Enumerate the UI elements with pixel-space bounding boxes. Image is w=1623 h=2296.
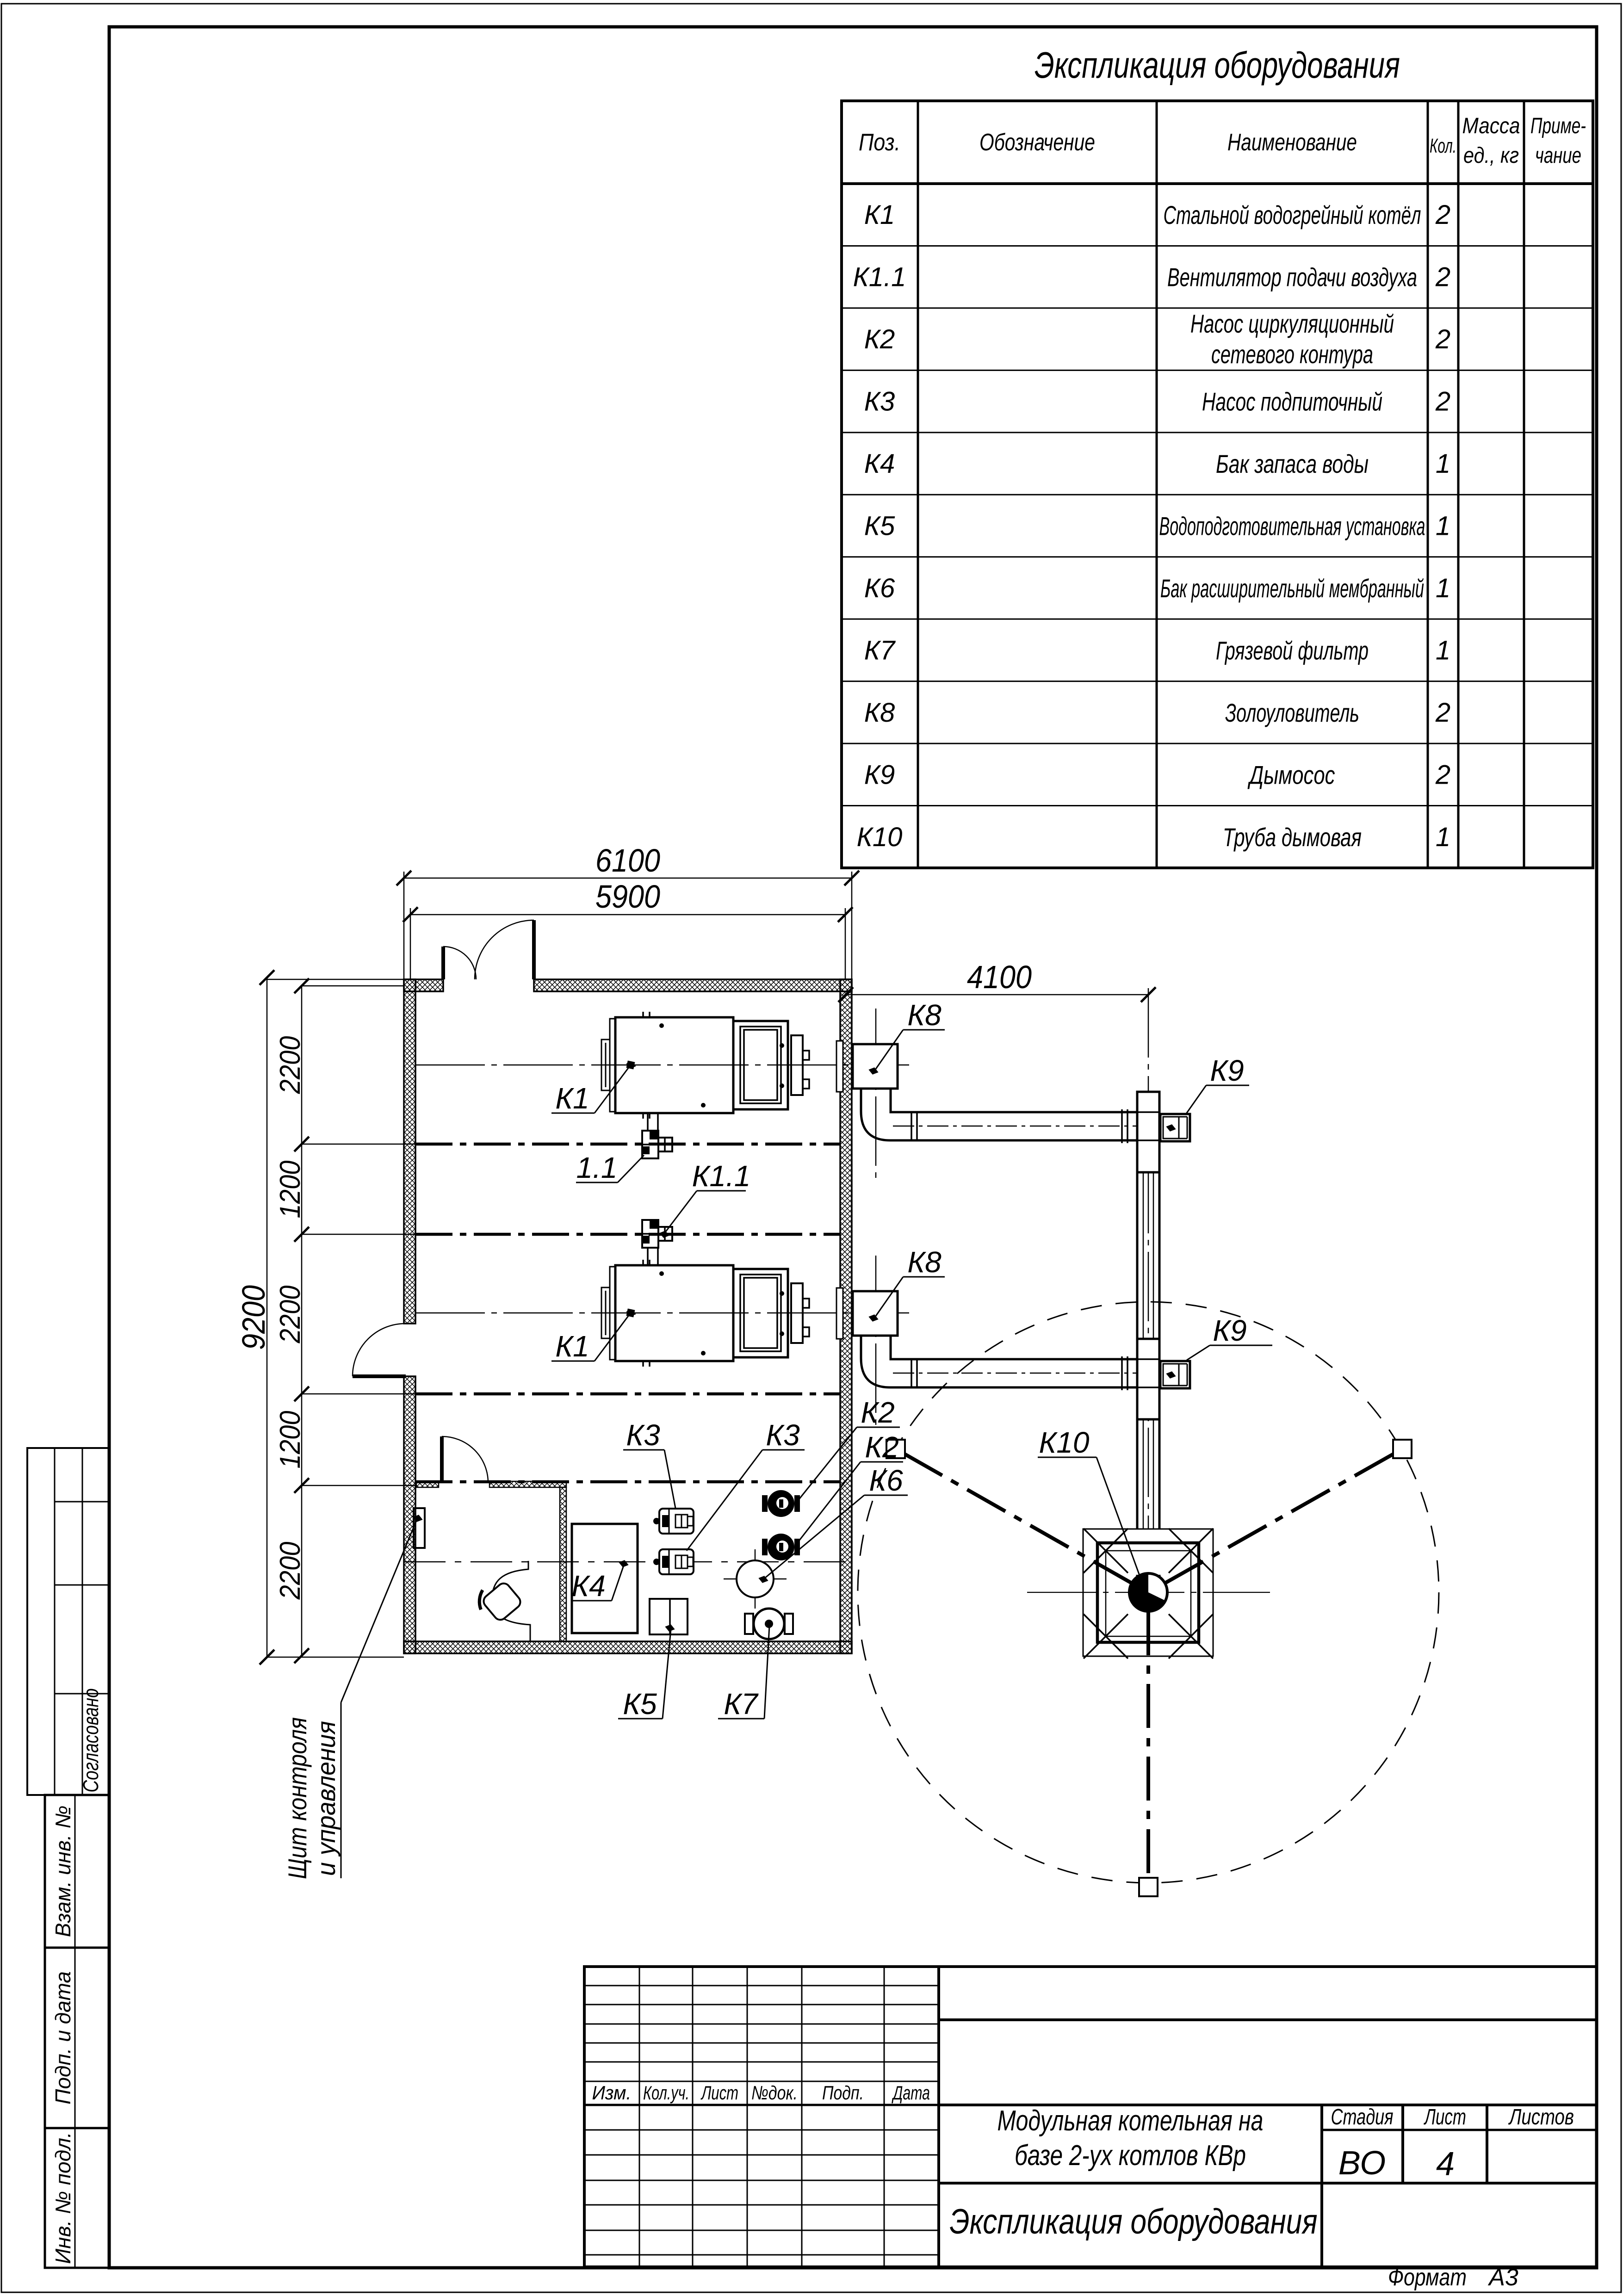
- svg-text:А3: А3: [1487, 2264, 1518, 2291]
- svg-text:Стадия: Стадия: [1331, 2105, 1394, 2129]
- svg-text:Подп. и дата: Подп. и дата: [51, 1971, 75, 2104]
- svg-text:Бак запаса воды: Бак запаса воды: [1216, 449, 1369, 478]
- svg-text:4: 4: [1436, 2146, 1455, 2183]
- svg-text:2: 2: [1435, 262, 1450, 292]
- svg-text:К5: К5: [864, 511, 895, 541]
- svg-text:2: 2: [1435, 760, 1450, 790]
- svg-text:Поз.: Поз.: [859, 129, 900, 156]
- svg-text:Водоподготовительная установка: Водоподготовительная установка: [1159, 512, 1425, 541]
- svg-text:Подп.: Подп.: [822, 2082, 864, 2104]
- svg-text:1: 1: [1436, 449, 1450, 479]
- svg-text:К9: К9: [1210, 1054, 1244, 1087]
- svg-text:1.1: 1.1: [576, 1151, 618, 1184]
- svg-text:К5: К5: [623, 1687, 657, 1720]
- svg-text:Труба дымовая: Труба дымовая: [1223, 823, 1362, 852]
- svg-text:К3: К3: [766, 1418, 800, 1452]
- svg-text:Кол.: Кол.: [1430, 135, 1456, 157]
- svg-text:ед., кг: ед., кг: [1463, 143, 1519, 168]
- svg-text:Приме-: Приме-: [1530, 114, 1586, 138]
- svg-text:4100: 4100: [967, 959, 1032, 995]
- svg-text:К4: К4: [571, 1569, 605, 1603]
- svg-text:К8: К8: [907, 998, 942, 1032]
- svg-text:Экспликация оборудования: Экспликация оборудования: [950, 2202, 1318, 2241]
- svg-text:Масса: Масса: [1462, 114, 1520, 138]
- svg-text:К3: К3: [626, 1418, 660, 1452]
- svg-text:К4: К4: [864, 449, 895, 479]
- svg-text:Золоуловитель: Золоуловитель: [1225, 698, 1359, 727]
- svg-text:сетевого контура: сетевого контура: [1211, 340, 1373, 369]
- svg-text:К1: К1: [555, 1330, 589, 1363]
- svg-text:К10: К10: [857, 822, 903, 852]
- svg-text:К1: К1: [555, 1082, 589, 1115]
- svg-text:К3: К3: [864, 387, 895, 417]
- svg-text:1200: 1200: [274, 1411, 306, 1469]
- svg-text:Формат: Формат: [1388, 2264, 1467, 2291]
- svg-text:2200: 2200: [274, 1286, 306, 1344]
- svg-text:2: 2: [1435, 387, 1450, 417]
- svg-text:№док.: №док.: [751, 2082, 798, 2104]
- svg-text:Экспликация оборудования: Экспликация оборудования: [1035, 44, 1400, 86]
- svg-text:К8: К8: [907, 1245, 942, 1279]
- svg-text:Вентилятор подачи воздуха: Вентилятор подачи воздуха: [1167, 263, 1417, 292]
- svg-text:К8: К8: [864, 698, 895, 728]
- svg-text:9200: 9200: [235, 1285, 272, 1350]
- svg-text:К2: К2: [861, 1396, 894, 1429]
- svg-text:К7: К7: [864, 635, 896, 665]
- svg-text:1: 1: [1436, 635, 1450, 665]
- svg-text:Взам. инв. №: Взам. инв. №: [51, 1806, 75, 1937]
- svg-text:и управления: и управления: [311, 1721, 341, 1876]
- svg-text:Лист: Лист: [1424, 2105, 1466, 2129]
- svg-text:Наименование: Наименование: [1227, 129, 1357, 156]
- svg-text:Модульная котельная на: Модульная котельная на: [997, 2105, 1264, 2137]
- svg-text:К9: К9: [864, 760, 895, 790]
- svg-text:Насос подпиточный: Насос подпиточный: [1202, 387, 1382, 416]
- svg-text:1200: 1200: [274, 1161, 306, 1219]
- svg-text:К1.1: К1.1: [853, 262, 906, 292]
- svg-text:К9: К9: [1213, 1314, 1246, 1347]
- svg-text:Дата: Дата: [892, 2082, 930, 2104]
- svg-text:К7: К7: [724, 1687, 759, 1720]
- svg-text:Изм.: Изм.: [592, 2082, 632, 2104]
- svg-text:К6: К6: [869, 1464, 903, 1497]
- svg-text:Грязевой фильтр: Грязевой фильтр: [1216, 636, 1369, 665]
- svg-text:1: 1: [1436, 822, 1450, 852]
- svg-text:2200: 2200: [274, 1542, 306, 1600]
- svg-text:2: 2: [1435, 324, 1450, 354]
- svg-text:чание: чание: [1535, 143, 1581, 168]
- svg-text:Щит контроля: Щит контроля: [283, 1717, 312, 1879]
- svg-text:К1.1: К1.1: [692, 1159, 751, 1193]
- svg-text:2: 2: [1435, 698, 1450, 728]
- svg-text:1: 1: [1436, 573, 1450, 603]
- svg-text:Листов: Листов: [1508, 2105, 1574, 2129]
- svg-text:Инв. № подл.: Инв. № подл.: [51, 2132, 75, 2264]
- svg-text:Насос циркуляционный: Насос циркуляционный: [1190, 309, 1394, 338]
- svg-text:ВО: ВО: [1338, 2145, 1386, 2182]
- svg-text:Дымосос: Дымосос: [1247, 760, 1335, 789]
- svg-text:К2: К2: [865, 1430, 898, 1464]
- svg-text:Кол.уч.: Кол.уч.: [643, 2082, 689, 2104]
- svg-text:5900: 5900: [595, 879, 660, 915]
- svg-text:2: 2: [1435, 200, 1450, 230]
- svg-text:К2: К2: [864, 324, 895, 354]
- svg-text:К1: К1: [864, 200, 895, 230]
- svg-text:базе 2-ух котлов КВр: базе 2-ух котлов КВр: [1015, 2140, 1246, 2172]
- svg-text:Бак расширительный мембранный: Бак расширительный мембранный: [1160, 574, 1424, 603]
- svg-text:1: 1: [1436, 511, 1450, 541]
- svg-text:Обозначение: Обозначение: [979, 129, 1095, 156]
- svg-text:К6: К6: [864, 573, 895, 603]
- svg-text:К10: К10: [1039, 1426, 1090, 1459]
- svg-text:6100: 6100: [595, 842, 660, 879]
- svg-text:Лист: Лист: [700, 2082, 738, 2104]
- svg-text:Стальной водогрейный котёл: Стальной водогрейный котёл: [1164, 200, 1421, 229]
- svg-text:2200: 2200: [274, 1036, 306, 1095]
- svg-text:Согласовано: Согласовано: [79, 1689, 103, 1793]
